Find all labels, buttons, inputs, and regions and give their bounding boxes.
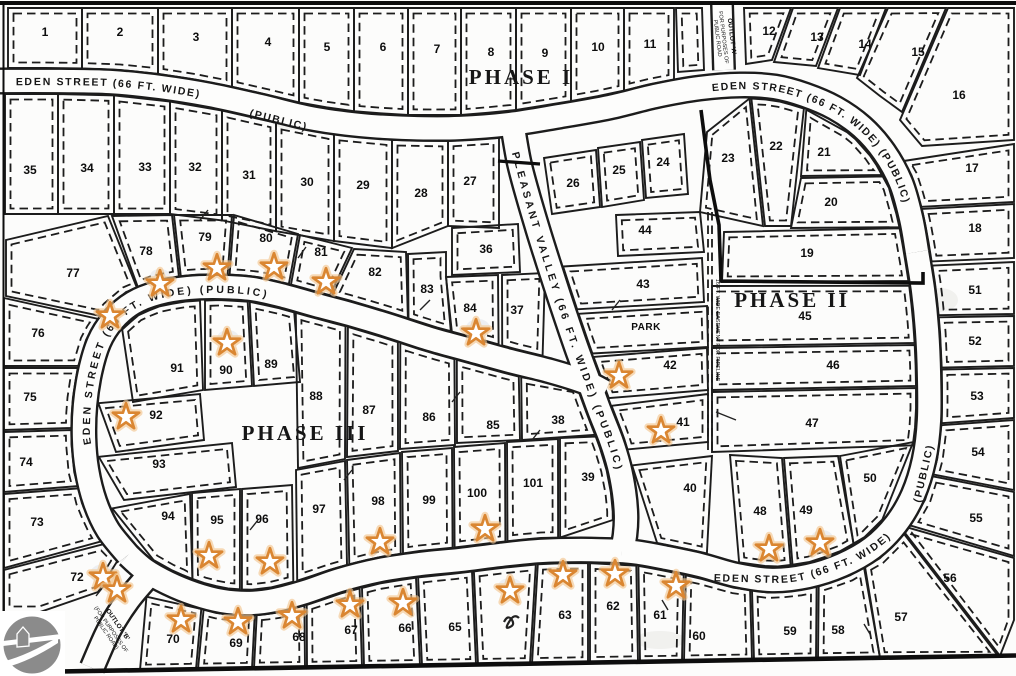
svg-text:68: 68 xyxy=(292,630,306,644)
svg-text:46: 46 xyxy=(826,358,840,372)
svg-text:21: 21 xyxy=(817,145,831,159)
svg-text:84: 84 xyxy=(463,301,477,315)
svg-text:92: 92 xyxy=(149,408,163,422)
svg-text:34: 34 xyxy=(80,161,94,175)
svg-text:53: 53 xyxy=(970,389,984,403)
svg-text:59: 59 xyxy=(783,624,797,638)
svg-text:51: 51 xyxy=(968,283,982,297)
svg-text:79: 79 xyxy=(198,230,212,244)
svg-text:39: 39 xyxy=(581,470,595,484)
svg-text:88: 88 xyxy=(309,389,323,403)
svg-text:3: 3 xyxy=(193,30,200,44)
svg-text:25: 25 xyxy=(612,163,626,177)
svg-text:82: 82 xyxy=(368,265,382,279)
svg-text:55: 55 xyxy=(969,511,983,525)
svg-text:61: 61 xyxy=(653,608,667,622)
svg-text:2: 2 xyxy=(117,25,124,39)
svg-text:50: 50 xyxy=(863,471,877,485)
svg-text:95: 95 xyxy=(210,513,224,527)
svg-text:94: 94 xyxy=(161,509,175,523)
svg-text:PHASE II: PHASE II xyxy=(734,288,850,312)
svg-text:97: 97 xyxy=(312,502,326,516)
svg-text:47: 47 xyxy=(805,416,819,430)
svg-text:78: 78 xyxy=(139,244,153,258)
svg-text:22: 22 xyxy=(769,139,783,153)
svg-text:16 FT. WIDE EASEMENT FOR PIPEL: 16 FT. WIDE EASEMENT FOR PIPELINE xyxy=(714,279,720,382)
svg-text:72: 72 xyxy=(70,570,84,584)
svg-text:87: 87 xyxy=(362,403,376,417)
svg-text:1: 1 xyxy=(42,25,49,39)
svg-text:38: 38 xyxy=(551,413,565,427)
svg-text:37: 37 xyxy=(510,303,524,317)
svg-text:28: 28 xyxy=(414,186,428,200)
svg-text:26: 26 xyxy=(566,176,580,190)
svg-text:15: 15 xyxy=(911,45,925,59)
svg-text:69: 69 xyxy=(229,636,243,650)
svg-text:33: 33 xyxy=(138,160,152,174)
svg-text:8: 8 xyxy=(488,45,495,59)
svg-text:80: 80 xyxy=(259,231,273,245)
svg-text:6: 6 xyxy=(380,40,387,54)
svg-text:30: 30 xyxy=(300,175,314,189)
svg-text:9: 9 xyxy=(542,46,549,60)
svg-text:98: 98 xyxy=(371,494,385,508)
svg-text:63: 63 xyxy=(558,608,572,622)
svg-text:27: 27 xyxy=(463,174,477,188)
svg-text:7: 7 xyxy=(434,42,441,56)
svg-text:67: 67 xyxy=(344,623,358,637)
svg-text:77: 77 xyxy=(66,266,80,280)
svg-text:4: 4 xyxy=(265,35,272,49)
svg-text:85: 85 xyxy=(486,418,500,432)
svg-text:18: 18 xyxy=(968,221,982,235)
svg-text:PHASE III: PHASE III xyxy=(242,421,369,445)
svg-text:81: 81 xyxy=(314,245,328,259)
svg-text:40: 40 xyxy=(683,481,697,495)
svg-text:PHASE I: PHASE I xyxy=(469,65,573,89)
svg-text:31: 31 xyxy=(242,168,256,182)
svg-text:74: 74 xyxy=(19,455,33,469)
svg-text:13: 13 xyxy=(810,30,824,44)
svg-text:89: 89 xyxy=(264,357,278,371)
svg-text:75: 75 xyxy=(23,390,37,404)
svg-text:100: 100 xyxy=(467,486,487,500)
svg-text:58: 58 xyxy=(831,623,845,637)
svg-text:65: 65 xyxy=(448,620,462,634)
svg-text:11: 11 xyxy=(644,37,657,51)
svg-text:91: 91 xyxy=(170,361,184,375)
svg-text:19: 19 xyxy=(800,246,814,260)
svg-text:76: 76 xyxy=(31,326,45,340)
svg-text:101: 101 xyxy=(523,476,543,490)
svg-text:43: 43 xyxy=(636,277,650,291)
svg-text:54: 54 xyxy=(971,445,985,459)
svg-text:57: 57 xyxy=(894,610,908,624)
svg-text:52: 52 xyxy=(968,334,982,348)
svg-text:23: 23 xyxy=(721,151,735,165)
svg-text:29: 29 xyxy=(356,178,370,192)
svg-text:44: 44 xyxy=(638,223,652,237)
svg-text:35: 35 xyxy=(23,163,37,177)
svg-text:16: 16 xyxy=(952,88,966,102)
svg-text:99: 99 xyxy=(422,493,436,507)
svg-text:49: 49 xyxy=(799,503,813,517)
svg-text:24: 24 xyxy=(656,155,670,169)
svg-text:20: 20 xyxy=(824,195,838,209)
svg-text:32: 32 xyxy=(188,160,202,174)
svg-text:86: 86 xyxy=(422,410,436,424)
svg-text:42: 42 xyxy=(663,358,677,372)
svg-text:56: 56 xyxy=(943,571,957,585)
svg-text:10: 10 xyxy=(591,40,605,54)
svg-text:93: 93 xyxy=(152,457,166,471)
svg-text:83: 83 xyxy=(420,282,434,296)
svg-text:36: 36 xyxy=(479,242,493,256)
svg-text:62: 62 xyxy=(606,599,620,613)
svg-text:73: 73 xyxy=(30,515,44,529)
svg-text:60: 60 xyxy=(692,629,706,643)
svg-text:17: 17 xyxy=(965,161,979,175)
svg-text:48: 48 xyxy=(753,504,767,518)
svg-text:12: 12 xyxy=(762,24,776,38)
svg-text:90: 90 xyxy=(219,363,233,377)
svg-text:41: 41 xyxy=(676,415,690,429)
svg-text:5: 5 xyxy=(324,40,331,54)
svg-text:PARK: PARK xyxy=(631,322,661,333)
svg-text:96: 96 xyxy=(255,512,269,526)
svg-text:66: 66 xyxy=(398,621,412,635)
